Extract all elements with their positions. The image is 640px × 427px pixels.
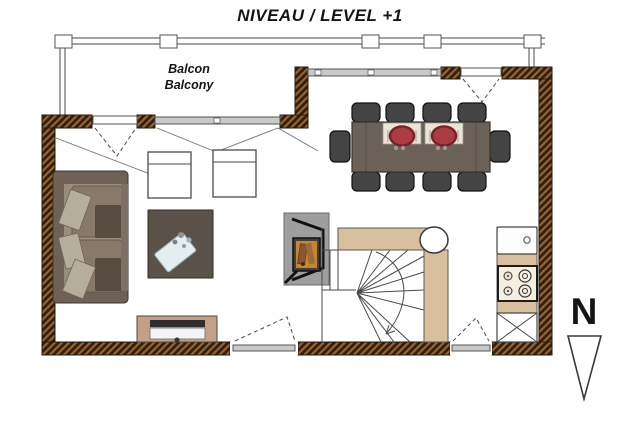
north-arrow-triangle: [568, 336, 601, 399]
crossed-appliance: [497, 313, 537, 342]
door-leaf-line: [56, 138, 150, 174]
door-top-left: [93, 116, 137, 156]
page-title: NIVEAU / LEVEL +1: [0, 6, 640, 26]
wall-right: [539, 67, 552, 355]
north-label: N: [565, 293, 603, 331]
coffee-table: [148, 210, 213, 278]
floor-plan-drawing: [0, 0, 640, 427]
tv-stand: [137, 316, 217, 343]
stair-walk-line: [376, 252, 404, 334]
dining-set: [330, 103, 510, 191]
armchair-1: [148, 152, 191, 198]
glazing-top-right: [308, 69, 441, 76]
kitchen: [497, 227, 537, 342]
railing-posts: [55, 35, 541, 48]
door-top-right: [461, 68, 501, 102]
balcony-label-fr: Balcon: [149, 61, 229, 77]
cooktop: [498, 266, 537, 301]
floor-plan: NIVEAU / LEVEL +1 Balcon Balcony N: [0, 0, 640, 427]
winder-staircase: [322, 227, 448, 342]
stair-wall-right: [424, 250, 448, 342]
stair-column: [420, 227, 448, 253]
sofa: [53, 171, 128, 303]
kitchen-sink: [497, 227, 537, 254]
window-bottom-right: [450, 318, 492, 355]
tv: [150, 320, 205, 327]
armchair-2: [213, 150, 256, 197]
balcony-label: Balcon Balcony: [149, 61, 229, 93]
balcony-label-en: Balcony: [149, 77, 229, 93]
window-bottom-left: [230, 317, 298, 355]
